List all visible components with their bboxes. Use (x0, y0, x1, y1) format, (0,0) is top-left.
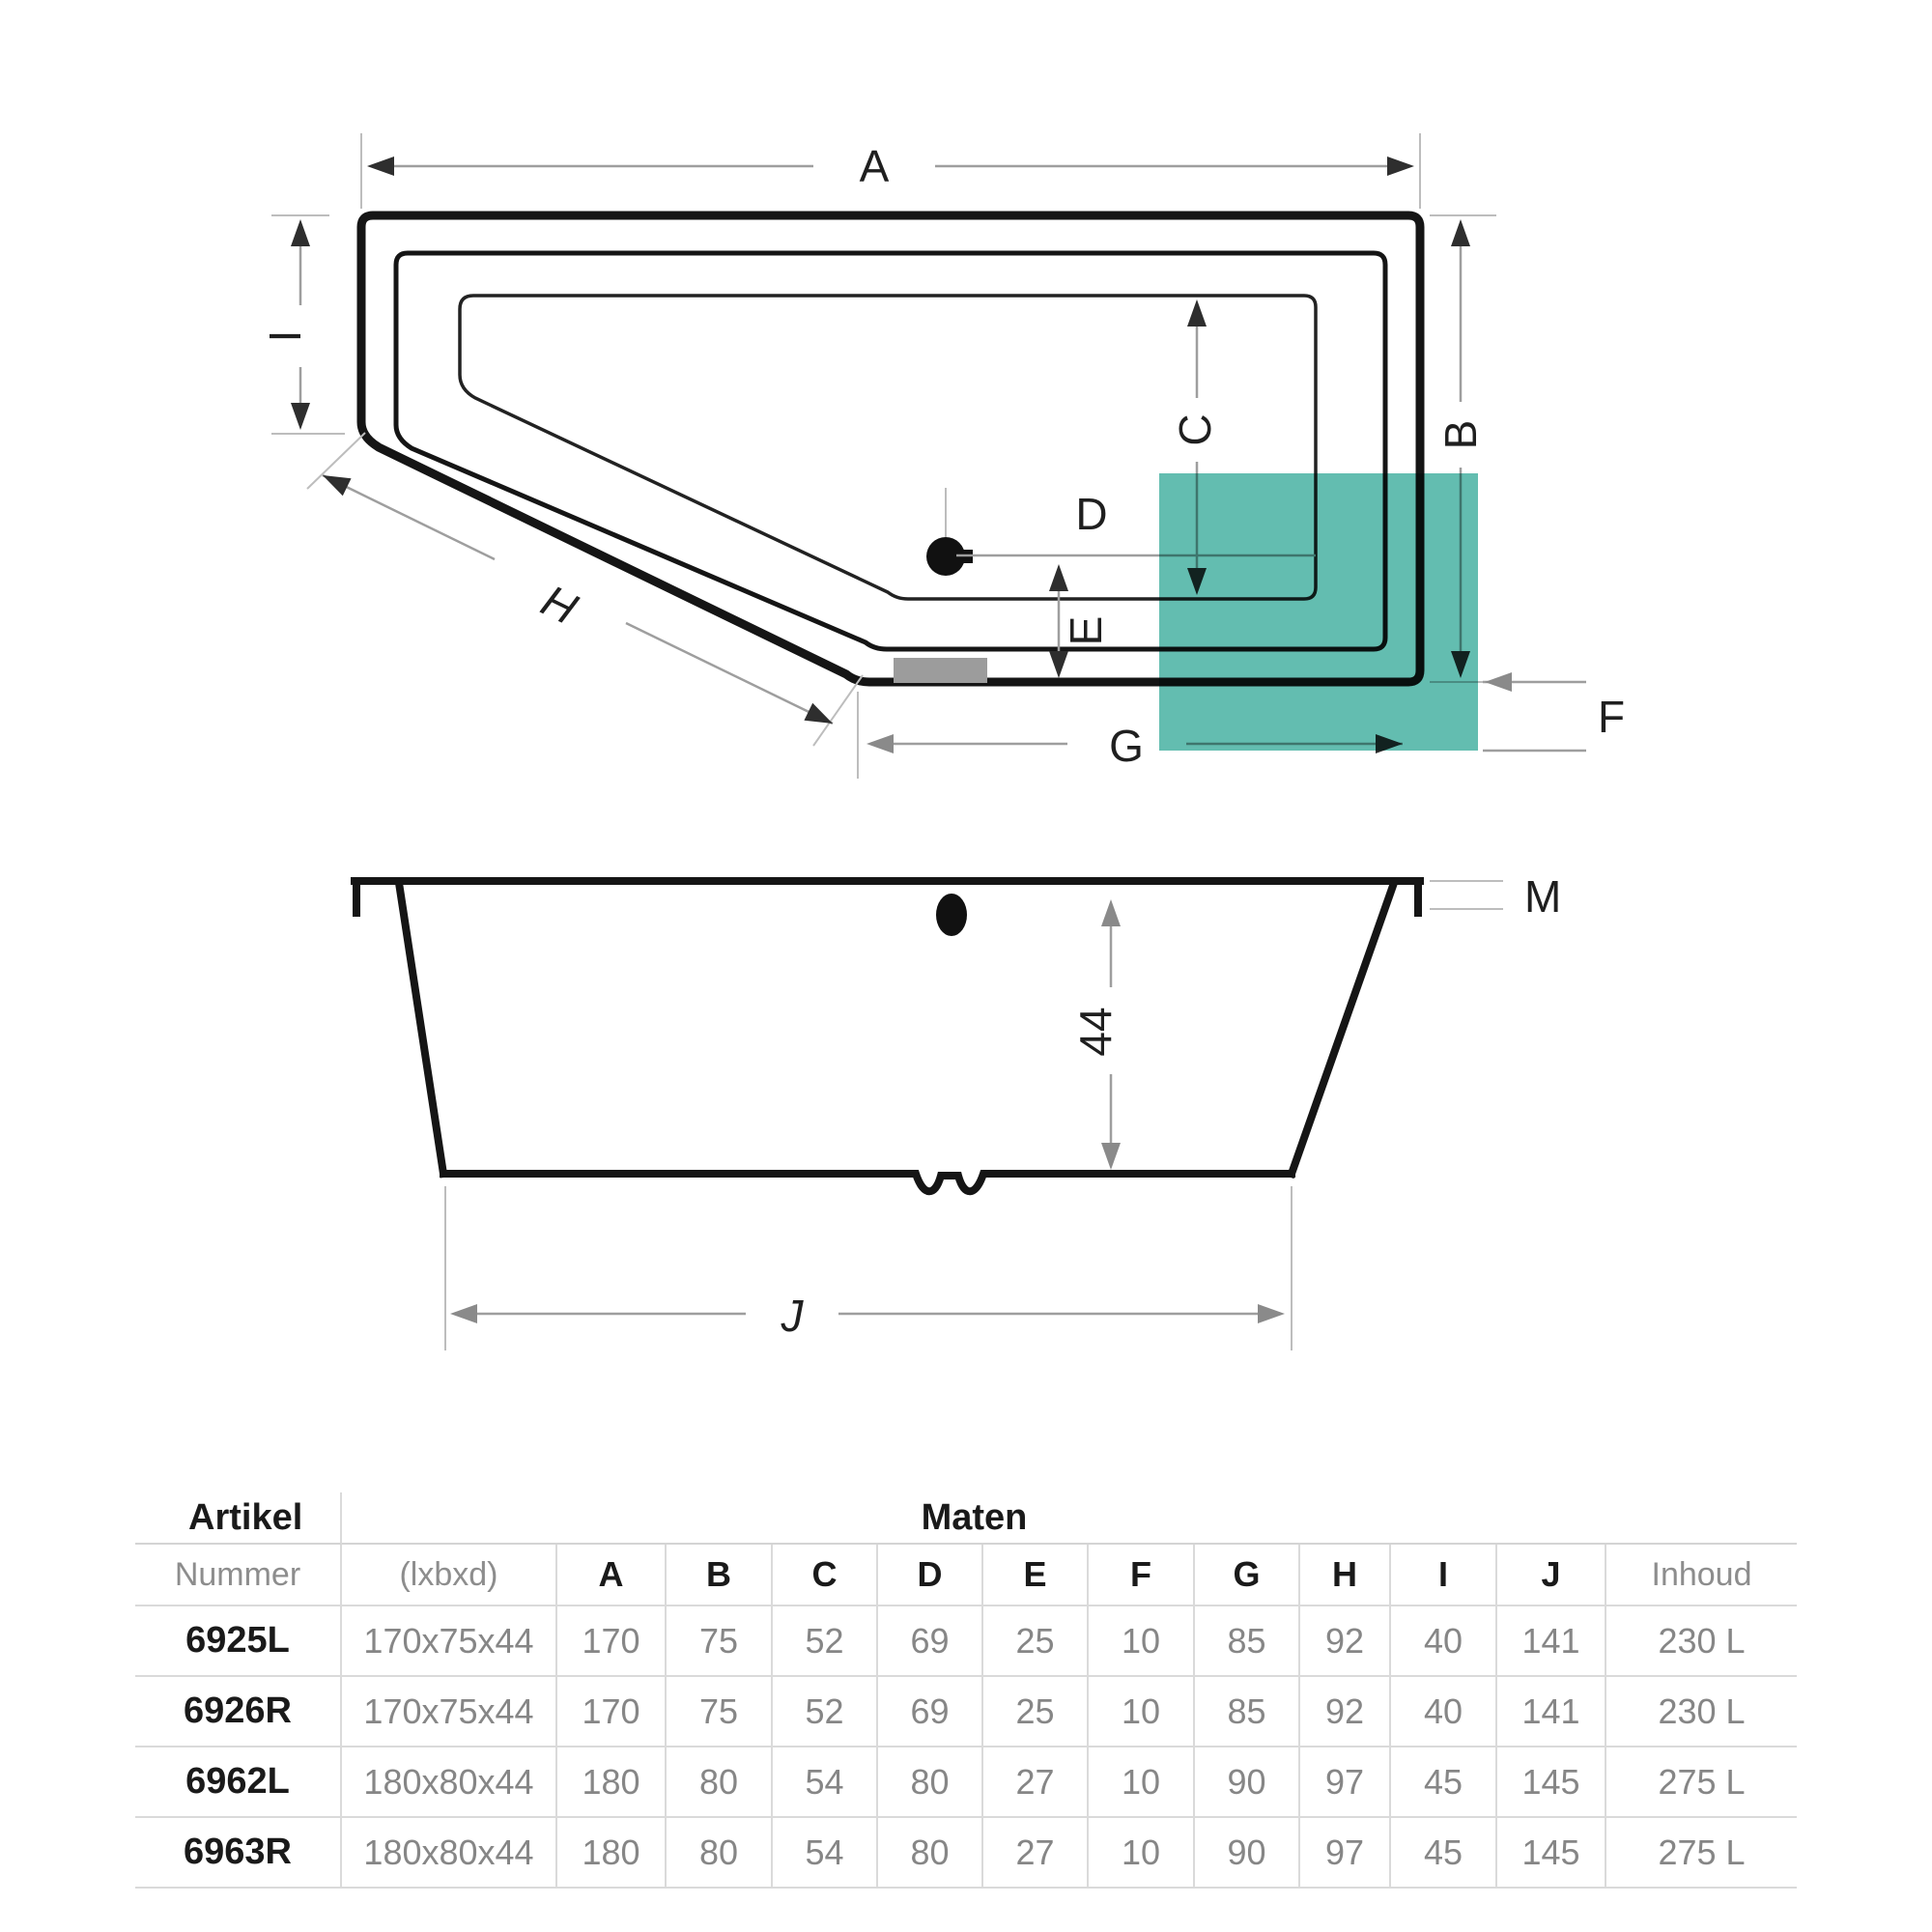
cell-H: 97 (1300, 1818, 1391, 1889)
cell-B: 80 (667, 1747, 773, 1818)
dim-label-I: I (260, 330, 310, 343)
cell-H: 92 (1300, 1606, 1391, 1677)
cell-D: 80 (878, 1747, 983, 1818)
cell-D: 80 (878, 1818, 983, 1889)
dim-label-F: F (1598, 692, 1625, 742)
side-dimension-arrows (450, 899, 1285, 1323)
cell-A: 180 (557, 1747, 667, 1818)
dim-label-B: B (1435, 420, 1486, 450)
dim-label-44: 44 (1070, 1007, 1121, 1056)
col-header-E: E (983, 1545, 1089, 1606)
cell-J: 145 (1497, 1818, 1606, 1889)
cell-J: 141 (1497, 1677, 1606, 1747)
cell-H: 97 (1300, 1747, 1391, 1818)
col-header-D: D (878, 1545, 983, 1606)
spec-table: Artikel Maten Nummer (lxbxd) A B C D E F… (135, 1492, 1797, 1889)
bathtub-spec-sheet: A I B C D E G H F (0, 0, 1932, 1932)
cell-A: 170 (557, 1606, 667, 1677)
cell-B: 80 (667, 1818, 773, 1889)
col-header-J: J (1497, 1545, 1606, 1606)
row-size: 170x75x44 (342, 1677, 557, 1747)
cell-A: 180 (557, 1818, 667, 1889)
col-header-B: B (667, 1545, 773, 1606)
drain-side (936, 894, 967, 936)
cell-inhoud: 275 L (1606, 1818, 1797, 1889)
cell-F: 10 (1089, 1606, 1195, 1677)
plan-view: A I B C D E G H F (260, 133, 1625, 779)
col-header-H: H (1300, 1545, 1391, 1606)
cell-E: 25 (983, 1606, 1089, 1677)
cell-G: 90 (1195, 1747, 1300, 1818)
cell-E: 27 (983, 1747, 1089, 1818)
dim-label-M: M (1524, 871, 1561, 922)
cell-E: 25 (983, 1677, 1089, 1747)
table-title-maten: Maten (342, 1492, 1606, 1545)
cell-I: 45 (1391, 1818, 1497, 1889)
cell-H: 92 (1300, 1677, 1391, 1747)
side-view: 44 M J (355, 871, 1561, 1350)
row-size: 180x80x44 (342, 1818, 557, 1889)
side-extension-lines (445, 881, 1503, 1350)
cell-I: 45 (1391, 1747, 1497, 1818)
dim-label-A: A (860, 141, 890, 191)
col-header-nummer: Nummer (135, 1545, 342, 1606)
dim-label-H: H (534, 575, 585, 635)
cell-B: 75 (667, 1606, 773, 1677)
row-nummer: 6925L (135, 1606, 342, 1677)
cell-J: 141 (1497, 1606, 1606, 1677)
cell-inhoud: 275 L (1606, 1747, 1797, 1818)
row-size: 170x75x44 (342, 1606, 557, 1677)
cell-G: 85 (1195, 1677, 1300, 1747)
row-nummer: 6963R (135, 1818, 342, 1889)
dim-label-D: D (1075, 489, 1107, 539)
dim-label-E: E (1061, 616, 1111, 646)
row-size: 180x80x44 (342, 1747, 557, 1818)
col-header-I: I (1391, 1545, 1497, 1606)
col-header-C: C (773, 1545, 878, 1606)
col-header-F: F (1089, 1545, 1195, 1606)
col-header-A: A (557, 1545, 667, 1606)
row-nummer: 6962L (135, 1747, 342, 1818)
row-nummer: 6926R (135, 1677, 342, 1747)
col-header-G: G (1195, 1545, 1300, 1606)
cell-inhoud: 230 L (1606, 1606, 1797, 1677)
cell-D: 69 (878, 1606, 983, 1677)
cell-I: 40 (1391, 1677, 1497, 1747)
cell-G: 90 (1195, 1818, 1300, 1889)
col-header-inhoud: Inhoud (1606, 1545, 1797, 1606)
cell-inhoud: 230 L (1606, 1677, 1797, 1747)
cell-C: 54 (773, 1818, 878, 1889)
cell-B: 75 (667, 1677, 773, 1747)
dim-label-G: G (1109, 721, 1144, 771)
cell-F: 10 (1089, 1747, 1195, 1818)
cell-C: 54 (773, 1747, 878, 1818)
side-dimension-lines (454, 903, 1281, 1314)
table-title-artikel: Artikel (135, 1492, 342, 1545)
corner-install-square (1159, 473, 1478, 751)
cell-C: 52 (773, 1606, 878, 1677)
cell-E: 27 (983, 1818, 1089, 1889)
cell-F: 10 (1089, 1818, 1195, 1889)
dim-label-J: J (781, 1291, 805, 1341)
overflow-pad (894, 658, 987, 683)
col-header-size: (lxbxd) (342, 1545, 557, 1606)
cell-C: 52 (773, 1677, 878, 1747)
cell-F: 10 (1089, 1677, 1195, 1747)
cell-I: 40 (1391, 1606, 1497, 1677)
dim-label-C: C (1170, 413, 1220, 445)
cell-A: 170 (557, 1677, 667, 1747)
cell-G: 85 (1195, 1606, 1300, 1677)
cell-D: 69 (878, 1677, 983, 1747)
cell-J: 145 (1497, 1747, 1606, 1818)
table-title-spacer (1606, 1492, 1797, 1545)
